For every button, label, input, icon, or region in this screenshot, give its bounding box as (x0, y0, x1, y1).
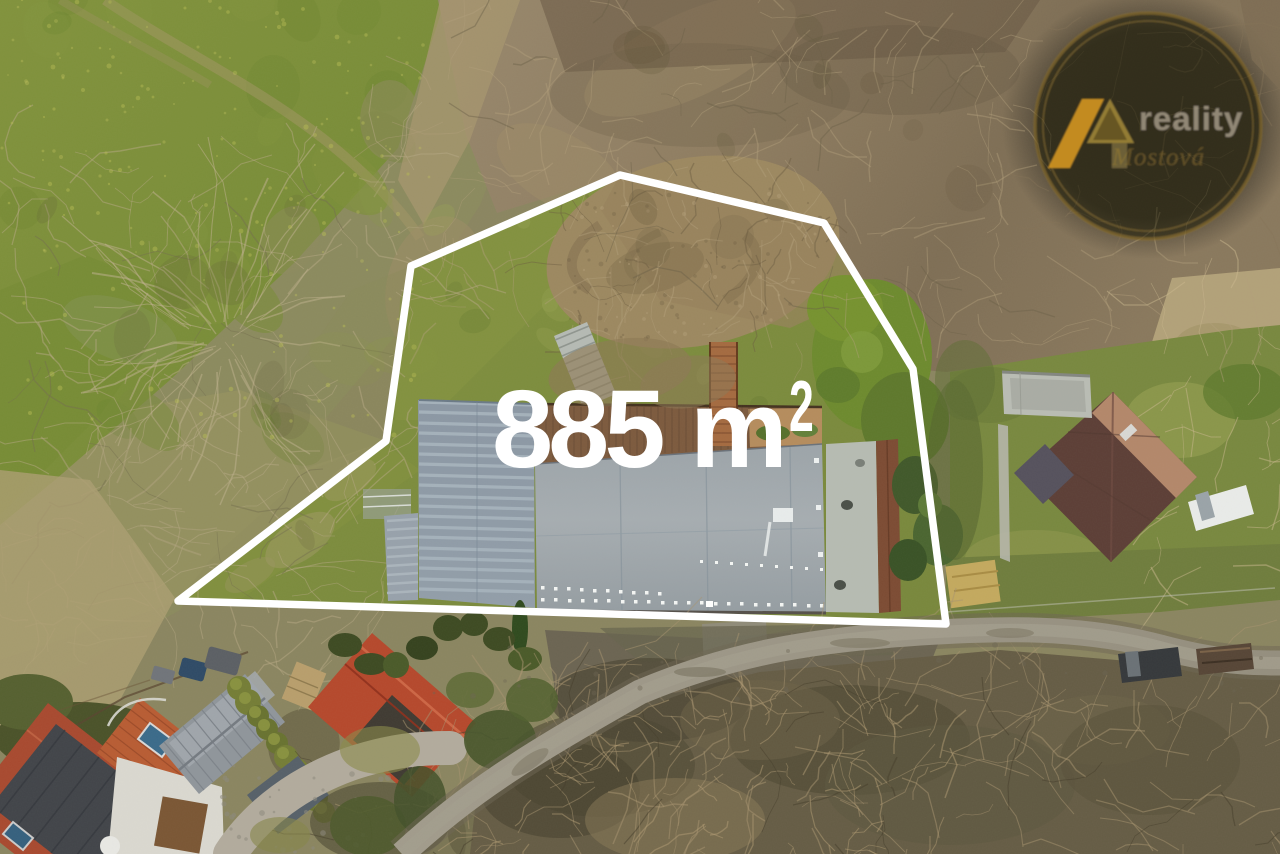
svg-text:2: 2 (789, 366, 814, 447)
svg-text:Mostová: Mostová (1111, 144, 1205, 171)
svg-text:reality: reality (1139, 100, 1243, 137)
svg-text:885: 885 (492, 368, 663, 491)
svg-text:m: m (690, 368, 788, 491)
